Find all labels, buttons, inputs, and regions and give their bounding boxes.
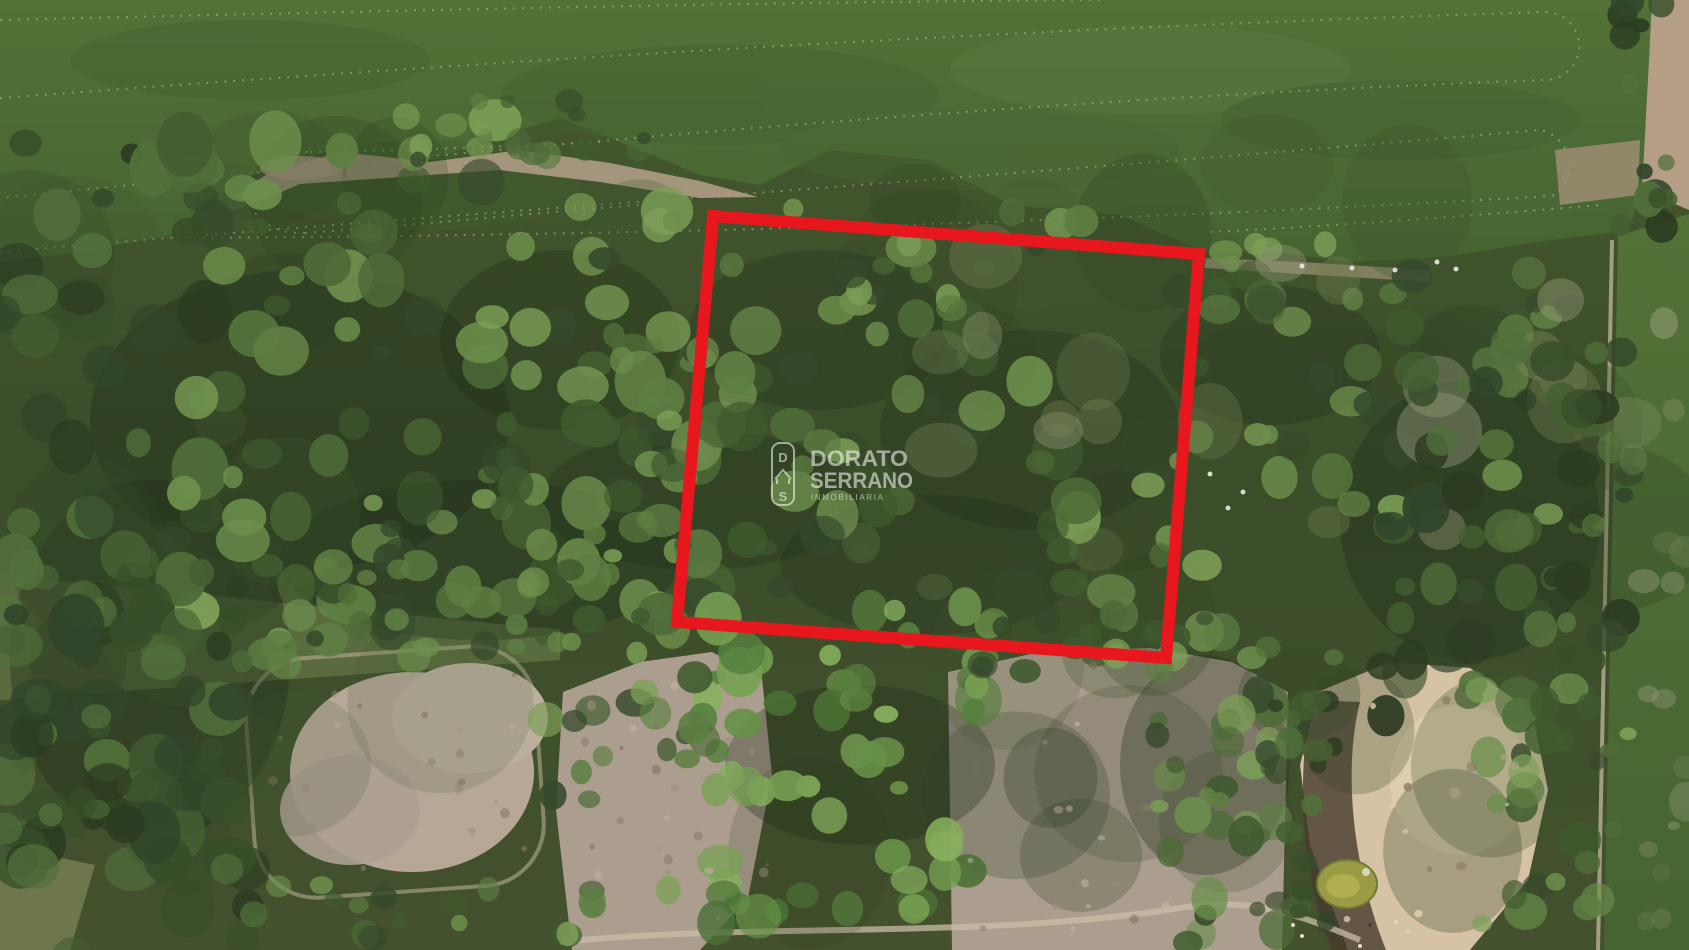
vegetation-blob [1020,799,1142,912]
vegetation-blob [617,817,624,824]
vegetation-blob [226,576,249,598]
vegetation-blob [391,912,409,929]
vegetation-blob [1445,620,1496,665]
vegetation-blob [278,736,282,741]
vegetation-blob [1143,705,1152,714]
vegetation-blob [1653,864,1670,882]
vegetation-blob [1588,752,1605,771]
vegetation-blob [1663,399,1685,422]
vegetation-blob [127,546,159,579]
vegetation-blob [337,192,362,215]
vegetation-blob [441,894,467,915]
vegetation-blob [1557,612,1576,632]
vegetation-blob [1079,624,1101,645]
vegetation-blob [270,492,311,541]
vegetation-blob [223,466,243,489]
vegetation-blob [571,760,592,785]
vegetation-blob [338,583,358,605]
vegetation-blob [393,103,420,129]
vegetation-blob [1604,821,1622,838]
vegetation-blob [1150,800,1169,813]
vegetation-blob [374,345,392,359]
vegetation-blob [766,576,794,596]
vegetation-blob [451,915,468,932]
vegetation-blob [1275,727,1304,760]
vegetation-blob [717,851,723,856]
vegetation-blob [637,132,651,144]
vegetation-blob [1175,797,1212,834]
vegetation-blob [1427,314,1463,341]
vegetation-blob [936,295,967,321]
vegetation-blob [779,351,818,385]
vegetation-blob [1387,602,1415,635]
vegetation-blob [141,644,186,680]
vegetation-blob [656,876,681,905]
vegetation-blob [800,516,845,555]
vegetation-blob [526,529,557,561]
vegetation-blob [188,389,214,413]
vegetation-blob [348,611,372,639]
vegetation-blob [58,280,105,314]
vegetation-blob [1467,762,1477,772]
vegetation-blob [1479,429,1514,459]
vegetation-blob [565,193,597,221]
vegetation-blob [493,801,498,805]
vegetation-blob [1639,841,1658,857]
vegetation-blob [49,419,95,474]
vegetation-blob [397,471,443,526]
vegetation-blob [832,891,864,927]
vegetation-blob [1456,579,1484,604]
vegetation-blob [1164,723,1170,728]
vegetation-blob [694,831,703,840]
vegetation-blob [263,295,290,315]
vegetation-blob [1290,903,1309,918]
vegetation-blob [1209,240,1242,264]
vegetation-blob [229,310,280,357]
vegetation-blob [967,651,997,678]
vegetation-blob [1485,509,1534,553]
vegetation-blob [891,375,924,413]
vegetation-blob [1050,569,1088,596]
vegetation-blob [980,925,986,931]
vegetation-blob [812,797,848,834]
vegetation-blob [866,322,889,347]
vegetation-blob [1342,124,1472,279]
vegetation-blob [1404,783,1413,792]
vegetation-blob [240,901,267,927]
vegetation-blob [767,770,807,801]
vegetation-blob [249,110,301,172]
vegetation-blob [1465,677,1498,703]
vegetation-blob [404,418,442,455]
vegetation-blob [917,574,953,600]
vegetation-blob [1314,231,1336,257]
vegetation-blob [924,396,941,416]
vegetation-blob [10,712,53,758]
watermark-brand-line2: SERRANO [810,468,913,493]
vegetation-blob [1182,550,1222,581]
vegetation-blob [1537,278,1584,322]
vegetation-blob [1307,506,1350,538]
vegetation-blob [511,360,542,390]
vegetation-blob [126,428,151,457]
vegetation-blob [730,306,781,355]
vegetation-blob [657,738,677,761]
vegetation-blob [1389,802,1396,808]
vegetation-blob [1006,356,1052,407]
vegetation-blob [1156,836,1183,867]
vegetation-blob [620,746,624,750]
vegetation-blob [1456,862,1467,871]
vegetation-blob [476,305,509,329]
vegetation-blob [517,570,541,598]
vegetation-blob [1427,866,1432,872]
vegetation-blob [568,107,586,122]
vegetation-blob [262,630,298,664]
vegetation-blob [1100,600,1128,629]
vegetation-blob [314,549,353,584]
vegetation-blob [1324,649,1343,665]
vegetation-blob [1555,730,1574,752]
vegetation-blob [1620,727,1637,740]
vegetation-blob [427,758,435,766]
vegetation-blob [435,113,467,137]
vegetation-blob [81,704,111,729]
vegetation-blob [1085,904,1091,908]
vegetation-blob [1076,399,1122,445]
vegetation-blob [1582,514,1605,538]
vegetation-blob [1344,344,1382,381]
vegetation-blob [652,765,661,775]
vegetation-blob [654,725,660,730]
vegetation-blob [1661,572,1685,594]
vegetation-blob [1098,835,1105,840]
vegetation-blob [583,523,605,544]
vegetation-blob [350,209,398,255]
vegetation-blob [1009,659,1040,683]
vegetation-blob [657,847,661,851]
vegetation-blob [458,159,505,206]
vegetation-blob [580,895,606,918]
vegetation-blob [716,402,767,452]
aerial-drone-photo: D S DORATO SERRANO INMOBILIARIA [0,0,1689,950]
vegetation-blob [666,870,673,875]
vegetation-blob [470,93,488,110]
vegetation-blob [1053,903,1059,910]
vegetation-blob [179,280,233,344]
vegetation-blob [874,706,898,723]
vegetation-blob [702,773,731,806]
vegetation-blob [1490,334,1531,367]
vegetation-blob [764,691,797,716]
vegetation-blob [211,854,243,885]
vegetation-blob [421,712,428,719]
vegetation-blob [304,242,352,286]
vegetation-blob [657,410,683,430]
vegetation-blob [757,540,777,556]
vegetation-blob [899,894,930,924]
vegetation-blob [510,308,552,347]
vegetation-blob [1212,726,1245,757]
vegetation-blob [324,892,344,909]
vegetation-blob [610,347,634,374]
vegetation-blob [73,233,113,268]
vegetation-blob [1530,686,1559,721]
vegetation-blob [1051,477,1102,524]
vegetation-blob [1041,400,1079,437]
vegetation-blob [1630,18,1649,32]
vegetation-blob [1262,425,1278,444]
vegetation-blob [963,699,986,722]
vegetation-blob [456,322,508,364]
vegetation-blob [1402,829,1409,834]
vegetation-blob [843,523,881,564]
vegetation-blob [1523,611,1557,648]
vegetation-blob [884,600,905,621]
vegetation-blob [590,844,595,850]
vegetation-blob [1414,910,1423,918]
vegetation-blob [521,846,527,852]
vegetation-blob [1367,653,1399,680]
vegetation-blob [962,312,1002,360]
vegetation-blob [1394,640,1428,680]
vegetation-blob [358,253,404,308]
vegetation-blob [697,900,735,945]
vegetation-blob [246,219,270,236]
vegetation-blob [156,527,192,552]
vegetation-blob [640,697,672,730]
vegetation-blob [1069,527,1123,570]
vegetation-blob [301,784,310,793]
vegetation-blob [765,863,769,867]
vegetation-blob [993,616,1013,637]
vegetation-blob [585,285,629,320]
vegetation-blob [1510,761,1519,770]
vegetation-blob [129,305,178,354]
vegetation-blob [381,520,402,537]
vegetation-blob [562,633,581,651]
vegetation-blob [910,262,932,284]
vegetation-blob [999,197,1025,226]
vegetation-blob [1162,901,1170,911]
vegetation-blob [664,854,673,864]
vegetation-blob [109,610,153,652]
pond-center [1326,874,1360,898]
vegetation-blob [840,664,876,701]
vegetation-blob [92,189,115,207]
vegetation-blob [1561,389,1602,428]
vegetation-blob [357,703,363,709]
vegetation-blob [512,673,517,678]
vegetation-blob [1605,337,1637,366]
vegetation-blob [1301,794,1322,816]
vegetation-blob [1619,444,1647,475]
vegetation-blob [1037,713,1045,720]
vegetation-blob [1509,754,1540,788]
vegetation-blob [326,133,359,169]
vegetation-blob [4,604,29,625]
vegetation-blob [157,112,213,177]
vegetation-blob [471,631,499,660]
vegetation-blob [456,749,464,759]
vegetation-blob [663,211,681,231]
vegetation-blob [232,650,253,673]
vegetation-blob [1249,902,1265,916]
vegetation-blob [1449,787,1460,798]
vegetation-blob [578,791,600,809]
vegetation-blob [334,317,360,342]
vegetation-blob [1420,562,1457,605]
vegetation-blob [724,709,761,738]
vegetation-blob [1555,561,1592,601]
vegetation-blob [1261,456,1297,499]
vegetation-blob [539,780,566,809]
vegetation-blob [1637,164,1653,180]
vegetation-blob [1166,756,1184,773]
vegetation-blob [1070,884,1077,889]
vegetation-blob [716,916,720,920]
vegetation-blob [357,570,377,586]
vegetation-blob [587,700,596,711]
vegetation-blob [629,725,637,731]
vegetation-blob [1648,188,1666,208]
vegetation-blob [1078,202,1245,351]
vegetation-blob [83,346,127,388]
vegetation-blob [1081,879,1089,887]
vegetation-blob [506,232,535,261]
vegetation-blob [671,785,680,792]
vegetation-blob [206,632,231,661]
vegetation-blob [1395,577,1416,595]
vegetation-blob [478,877,500,902]
vegetation-blob [10,679,68,720]
vegetation-blob [1609,213,1631,236]
vegetation-blob [445,565,482,607]
vegetation-blob [1577,693,1602,720]
vegetation-blob [1130,915,1139,924]
vegetation-blob [891,866,928,894]
vegetation-blob [39,803,63,826]
vegetation-blob [9,130,41,157]
vegetation-blob [1375,512,1395,526]
vegetation-blob [457,726,463,733]
vegetation-blob [636,511,656,529]
vegetation-blob [890,781,908,795]
vegetation-blob [1395,351,1440,391]
vegetation-blob [162,880,214,938]
vegetation-blob [1200,114,1334,214]
vegetation-blob [753,925,758,929]
vegetation-blob [334,722,340,729]
vegetation-blob [749,748,755,755]
vegetation-blob [69,788,97,819]
vegetation-blob [1344,916,1351,922]
logo-top-letter: D [778,450,787,465]
vegetation-blob [1586,620,1628,652]
vegetation-blob [588,247,619,269]
vegetation-blob [557,922,579,946]
vegetation-blob [872,257,895,274]
vegetation-blob [1071,926,1076,932]
vegetation-blob [1512,257,1546,290]
vegetation-blob [75,486,121,540]
vegetation-blob [604,549,623,562]
vegetation-blob [225,175,260,202]
vegetation-blob [571,138,599,161]
vegetation-blob [1256,245,1307,282]
vegetation-blob [501,95,515,108]
vegetation-blob [410,152,426,168]
vegetation-blob [1229,816,1265,857]
vegetation-blob [1255,637,1281,659]
vegetation-blob [678,711,709,744]
vegetation-blob [1308,362,1334,391]
vegetation-blob [1277,431,1309,460]
vegetation-blob [1385,309,1424,346]
vegetation-blob [631,608,650,625]
vegetation-blob [1501,754,1509,761]
vegetation-blob [1353,391,1389,418]
vegetation-blob [581,737,589,746]
vegetation-blob [959,390,1005,431]
vegetation-blob [1472,915,1492,932]
vegetation-blob [948,587,981,626]
vegetation-blob [835,260,868,288]
vegetation-blob [1530,341,1574,381]
vegetation-blob [1459,525,1486,549]
vegetation-blob [1316,256,1360,305]
vegetation-blob [306,630,323,646]
vegetation-blob [967,858,973,863]
vegetation-blob [1442,471,1484,513]
vegetation-blob [209,684,255,721]
vegetation-blob [736,894,781,939]
vegetation-blob [508,725,515,730]
vegetation-blob [282,599,316,632]
vegetation-blob [1668,821,1680,830]
vegetation-blob [387,559,410,579]
vegetation-blob [309,434,348,477]
vegetation-blob [364,495,383,511]
vegetation-blob [1276,821,1304,844]
vegetation-blob [1638,685,1659,702]
vegetation-blob [1049,211,1066,228]
vegetation-blob [349,897,369,914]
vegetation-blob [405,297,444,336]
vegetation-blob [266,875,291,897]
vegetation-blob [308,823,316,829]
vegetation-blob [1515,389,1536,411]
vegetation-blob [338,407,369,440]
vegetation-blob [561,399,611,445]
vegetation-blob [1442,696,1451,705]
vegetation-blob [203,247,245,285]
vegetation-blob [728,767,765,807]
vegetation-blob [519,142,550,165]
vegetation-blob [1042,740,1047,745]
vegetation-blob [1138,803,1146,809]
vegetation-blob [925,817,964,861]
vegetation-blob [1063,205,1099,237]
vegetation-blob [725,737,733,744]
vegetation-blob [1482,460,1522,491]
vegetation-blob [496,412,517,436]
vegetation-blob [505,614,527,635]
vegetation-blob [1573,894,1602,920]
vegetation-blob [1066,805,1074,812]
vegetation-blob [222,498,266,535]
